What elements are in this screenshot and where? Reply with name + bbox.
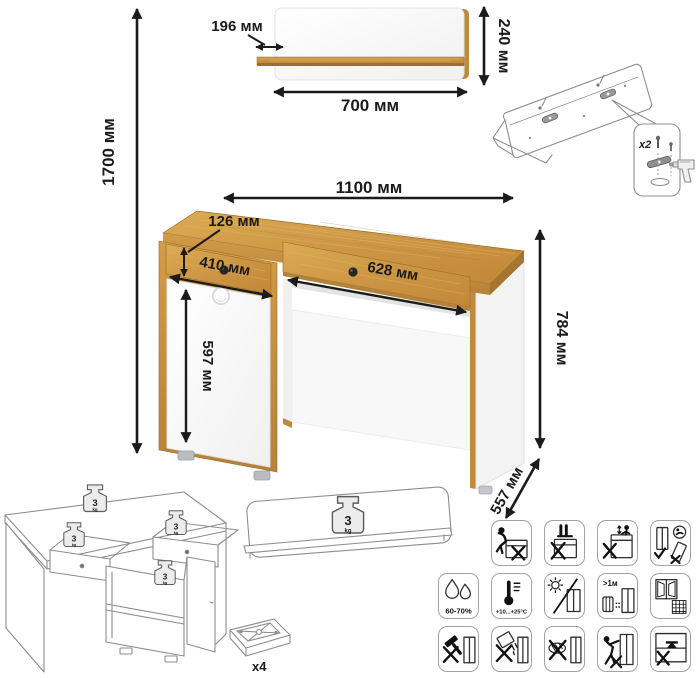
load-weight-right-drawer: 3 kg <box>166 511 186 535</box>
ventilated-room-icon <box>650 573 691 619</box>
wall-shelf-illustration: 196 мм 700 мм 240 мм <box>200 0 510 115</box>
door-height-label: 597 мм <box>199 340 216 391</box>
humidity-range-label: 60-70% <box>445 606 472 615</box>
svg-text:3: 3 <box>344 513 351 528</box>
feet-count-label: x4 <box>252 659 267 674</box>
drawer-height-label: 126 мм <box>208 213 259 230</box>
svg-text:kg: kg <box>174 530 179 535</box>
foot-detail-drawing: x4 <box>216 608 296 676</box>
right-drawer-knob <box>348 267 357 276</box>
load-weight-inner-shelf: 3 kg <box>155 561 175 585</box>
no-striking-tools-icon <box>438 626 479 672</box>
shelf-depth-dimension: 196 мм <box>211 18 283 47</box>
wall-fittings-count-label: x2 <box>638 139 651 151</box>
distance-from-heater-icon: >1м <box>597 573 638 619</box>
temperature-icon: +10...+25°C <box>491 573 532 619</box>
temperature-range-label: +10...+25°C <box>496 609 528 615</box>
shelf-load-drawing: 3 kg <box>236 482 471 572</box>
load-weight-shelf: 3 kg <box>332 497 363 535</box>
shelf-width-label: 700 мм <box>341 96 399 115</box>
left-pedestal <box>159 241 277 472</box>
desk-back-panel <box>292 310 470 450</box>
no-climbing-icon <box>597 520 638 566</box>
no-sitting-icon <box>491 520 532 566</box>
shelf-board <box>257 57 464 66</box>
shelf-depth-label: 196 мм <box>211 18 262 35</box>
no-abrasive-cleaners-icon <box>544 626 585 672</box>
desk-load-drawing: 3 kg 3 kg 3 kg 3 kg <box>0 482 245 678</box>
load-weight-left-drawer: 3 kg <box>64 523 84 547</box>
desk-height-label: 784 мм <box>553 311 570 366</box>
svg-text:kg: kg <box>72 542 77 547</box>
desk-width-label: 1100 мм <box>336 180 403 197</box>
no-pushing-icon <box>597 626 638 672</box>
desk-illustration: 1100 мм 126 мм 410 мм 628 мм 597 мм 784 … <box>140 180 570 530</box>
right-side-panel <box>476 261 524 489</box>
svg-text:kg: kg <box>345 528 352 534</box>
svg-text:kg: kg <box>163 580 168 585</box>
total-height-label: 1700 мм <box>99 118 118 186</box>
cabinet-door <box>167 279 270 467</box>
desk-width-dimension: 1100 мм <box>224 180 513 198</box>
carry-upright-no-drag-icon <box>650 520 691 566</box>
no-direct-sunlight-icon <box>544 573 585 619</box>
right-panel-oak-edge <box>470 288 476 489</box>
no-heavy-items-inside-icon <box>650 626 691 672</box>
shelf-width-dimension: 700 мм <box>274 92 467 115</box>
humidity-icon: 60-70% <box>438 573 479 619</box>
max-load-unit: kg <box>92 507 97 512</box>
load-weight-desktop: 3 kg <box>84 485 107 512</box>
shelf-back-panel <box>275 8 464 80</box>
furniture-dimension-diagram: 1700 мм 196 мм 700 мм 240 мм <box>0 0 700 678</box>
pedestal-inner-wall <box>283 279 292 422</box>
no-spilling-liquids-icon <box>491 626 532 672</box>
desk-height-dimension: 784 мм <box>540 230 570 448</box>
heater-distance-label: >1м <box>603 579 618 588</box>
no-standing-icon <box>544 520 585 566</box>
